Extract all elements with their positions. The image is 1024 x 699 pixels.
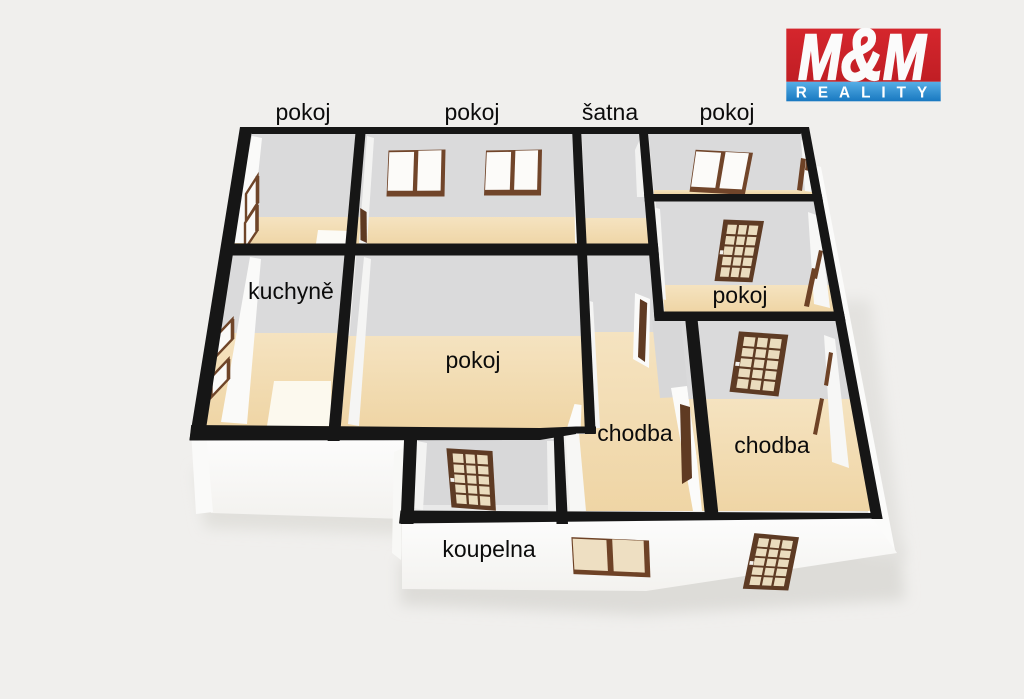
svg-text:šatna: šatna <box>582 99 638 125</box>
svg-text:koupelna: koupelna <box>442 536 536 562</box>
svg-text:chodba: chodba <box>597 420 673 446</box>
svg-text:pokoj: pokoj <box>700 99 755 125</box>
svg-text:pokoj: pokoj <box>445 99 500 125</box>
svg-text:REALITY: REALITY <box>796 84 938 101</box>
svg-text:kuchyně: kuchyně <box>248 278 334 304</box>
svg-text:pokoj: pokoj <box>446 347 501 373</box>
svg-text:chodba: chodba <box>734 432 810 458</box>
svg-text:pokoj: pokoj <box>713 282 768 308</box>
svg-text:pokoj: pokoj <box>276 99 331 125</box>
